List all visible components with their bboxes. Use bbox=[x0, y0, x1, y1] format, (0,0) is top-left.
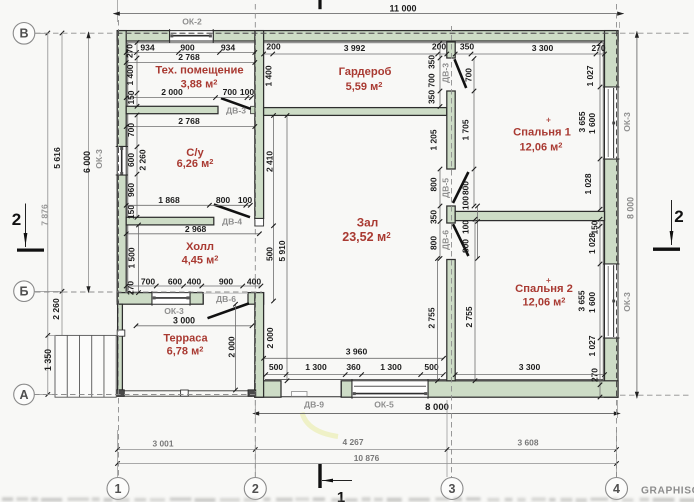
svg-text:150: 150 bbox=[126, 205, 136, 219]
svg-text:ОК-3: ОК-3 bbox=[622, 292, 632, 312]
svg-text:5,59 м2: 5,59 м2 bbox=[346, 80, 383, 93]
svg-text:2 410: 2 410 bbox=[264, 151, 274, 172]
svg-text:270: 270 bbox=[124, 44, 134, 58]
svg-text:3 655: 3 655 bbox=[577, 290, 587, 311]
svg-text:2 000: 2 000 bbox=[161, 87, 183, 97]
svg-text:800: 800 bbox=[429, 236, 439, 250]
svg-text:270: 270 bbox=[126, 281, 136, 295]
svg-text:2 755: 2 755 bbox=[426, 307, 436, 328]
svg-text:3 000: 3 000 bbox=[173, 316, 195, 326]
svg-text:ДВ-6: ДВ-6 bbox=[216, 294, 236, 304]
svg-text:Холл: Холл bbox=[186, 241, 214, 253]
svg-text:200: 200 bbox=[432, 42, 447, 52]
svg-text:2 768: 2 768 bbox=[178, 52, 200, 62]
svg-text:7 876: 7 876 bbox=[40, 204, 50, 226]
svg-text:5 616: 5 616 bbox=[52, 147, 62, 169]
svg-text:ДВ-3: ДВ-3 bbox=[226, 106, 246, 116]
svg-text:Тех. помещение: Тех. помещение bbox=[155, 65, 243, 77]
svg-text:ДВ-4: ДВ-4 bbox=[222, 217, 242, 227]
svg-text:360: 360 bbox=[346, 362, 361, 372]
svg-text:8 000: 8 000 bbox=[425, 402, 449, 413]
svg-text:700: 700 bbox=[427, 73, 437, 87]
svg-text:ОК-3: ОК-3 bbox=[164, 306, 184, 316]
svg-text:Спальня 1: Спальня 1 bbox=[513, 127, 571, 139]
svg-text:350: 350 bbox=[460, 42, 475, 52]
svg-text:500: 500 bbox=[269, 362, 284, 372]
svg-text:2 768: 2 768 bbox=[178, 116, 200, 126]
svg-text:11 000: 11 000 bbox=[389, 4, 416, 14]
svg-text:ДВ-5: ДВ-5 bbox=[441, 178, 451, 198]
svg-text:2 260: 2 260 bbox=[51, 298, 61, 320]
svg-text:3 001: 3 001 bbox=[153, 439, 174, 449]
svg-text:3 608: 3 608 bbox=[518, 438, 539, 448]
svg-text:12,06 м2: 12,06 м2 bbox=[520, 141, 563, 154]
svg-text:Терраса: Терраса bbox=[163, 333, 208, 345]
svg-text:700: 700 bbox=[463, 68, 473, 82]
svg-text:1 028: 1 028 bbox=[587, 233, 597, 254]
svg-text:2 968: 2 968 bbox=[185, 224, 207, 234]
svg-text:900: 900 bbox=[180, 43, 195, 53]
svg-text:350: 350 bbox=[427, 55, 437, 69]
svg-text:6,78 м2: 6,78 м2 bbox=[167, 345, 204, 358]
svg-text:+: + bbox=[546, 115, 551, 125]
svg-text:350: 350 bbox=[427, 90, 437, 104]
svg-text:1 868: 1 868 bbox=[158, 195, 180, 205]
svg-text:ОК-3: ОК-3 bbox=[94, 149, 104, 169]
svg-text:700: 700 bbox=[223, 87, 238, 97]
svg-text:700: 700 bbox=[141, 276, 156, 286]
svg-text:6,26 м2: 6,26 м2 bbox=[177, 157, 214, 170]
svg-text:3 960: 3 960 bbox=[346, 347, 368, 357]
svg-text:900: 900 bbox=[219, 276, 234, 286]
svg-text:6 000: 6 000 bbox=[82, 151, 92, 173]
svg-text:800: 800 bbox=[460, 239, 470, 253]
svg-text:А: А bbox=[19, 388, 28, 402]
svg-text:ОК-3: ОК-3 bbox=[622, 112, 632, 132]
svg-text:1 705: 1 705 bbox=[461, 119, 471, 140]
svg-text:2: 2 bbox=[252, 482, 259, 496]
svg-text:2: 2 bbox=[674, 207, 683, 226]
svg-text:934: 934 bbox=[140, 43, 155, 53]
svg-text:ДВ-6: ДВ-6 bbox=[441, 230, 451, 250]
svg-text:700: 700 bbox=[126, 123, 136, 137]
svg-text:1 600: 1 600 bbox=[587, 292, 597, 313]
svg-text:1 300: 1 300 bbox=[380, 362, 402, 372]
svg-text:1 350: 1 350 bbox=[43, 349, 53, 371]
svg-text:3 655: 3 655 bbox=[577, 111, 587, 132]
svg-text:1 027: 1 027 bbox=[585, 65, 595, 86]
svg-text:12,06 м2: 12,06 м2 bbox=[523, 296, 566, 309]
svg-text:1 500: 1 500 bbox=[126, 247, 136, 268]
svg-text:800: 800 bbox=[460, 181, 470, 195]
svg-text:350: 350 bbox=[429, 210, 439, 224]
svg-text:2 000: 2 000 bbox=[265, 327, 275, 348]
svg-text:2 260: 2 260 bbox=[138, 149, 148, 170]
svg-text:4 267: 4 267 bbox=[343, 437, 364, 447]
svg-text:3 300: 3 300 bbox=[532, 43, 554, 53]
svg-text:1 028: 1 028 bbox=[583, 173, 593, 194]
svg-text:1 205: 1 205 bbox=[429, 129, 439, 150]
svg-text:10 876: 10 876 bbox=[354, 453, 380, 463]
svg-text:В: В bbox=[19, 27, 28, 41]
svg-text:500: 500 bbox=[264, 247, 274, 261]
svg-text:1 300: 1 300 bbox=[305, 362, 327, 372]
svg-text:400: 400 bbox=[187, 276, 202, 286]
svg-text:600: 600 bbox=[126, 153, 136, 167]
svg-text:2: 2 bbox=[12, 210, 21, 229]
svg-text:5 910: 5 910 bbox=[277, 240, 287, 261]
svg-text:150: 150 bbox=[589, 220, 599, 234]
svg-text:Гардероб: Гардероб bbox=[339, 66, 392, 78]
svg-text:3 992: 3 992 bbox=[344, 43, 366, 53]
svg-text:150: 150 bbox=[126, 90, 136, 104]
svg-text:100: 100 bbox=[460, 196, 470, 210]
svg-text:1: 1 bbox=[115, 482, 122, 496]
svg-text:100: 100 bbox=[240, 87, 255, 97]
svg-text:500: 500 bbox=[424, 362, 439, 372]
svg-text:200: 200 bbox=[266, 42, 281, 52]
svg-text:100: 100 bbox=[460, 220, 470, 234]
svg-text:934: 934 bbox=[221, 43, 236, 53]
svg-text:GRAPHISOFT: GRAPHISOFT bbox=[641, 486, 694, 497]
svg-text:960: 960 bbox=[126, 183, 136, 197]
svg-text:4: 4 bbox=[613, 482, 620, 496]
svg-text:ДВ-3: ДВ-3 bbox=[441, 63, 451, 83]
svg-text:3: 3 bbox=[449, 482, 456, 496]
svg-text:600: 600 bbox=[168, 276, 183, 286]
svg-text:1 027: 1 027 bbox=[587, 335, 597, 356]
svg-text:Б: Б bbox=[20, 285, 29, 299]
svg-text:800: 800 bbox=[429, 177, 439, 191]
svg-text:ОК-5: ОК-5 bbox=[374, 400, 394, 410]
svg-text:23,52 м2: 23,52 м2 bbox=[342, 230, 391, 244]
svg-text:1 400: 1 400 bbox=[264, 65, 274, 86]
svg-text:ОК-2: ОК-2 bbox=[182, 17, 202, 27]
svg-text:2 755: 2 755 bbox=[464, 306, 474, 327]
svg-text:3,88 м2: 3,88 м2 bbox=[181, 78, 218, 91]
svg-text:800: 800 bbox=[216, 195, 231, 205]
svg-text:100: 100 bbox=[238, 195, 253, 205]
svg-text:3 300: 3 300 bbox=[519, 362, 541, 372]
svg-text:Зал: Зал bbox=[357, 216, 378, 230]
svg-text:8 000: 8 000 bbox=[626, 197, 636, 219]
svg-text:Спальня 2: Спальня 2 bbox=[515, 283, 573, 295]
svg-text:2 000: 2 000 bbox=[226, 336, 236, 357]
svg-text:400: 400 bbox=[247, 276, 262, 286]
svg-text:1 400: 1 400 bbox=[125, 64, 135, 85]
svg-text:4,45 м2: 4,45 м2 bbox=[182, 254, 219, 267]
svg-text:ДВ-9: ДВ-9 bbox=[304, 400, 324, 410]
svg-text:1 600: 1 600 bbox=[587, 113, 597, 134]
